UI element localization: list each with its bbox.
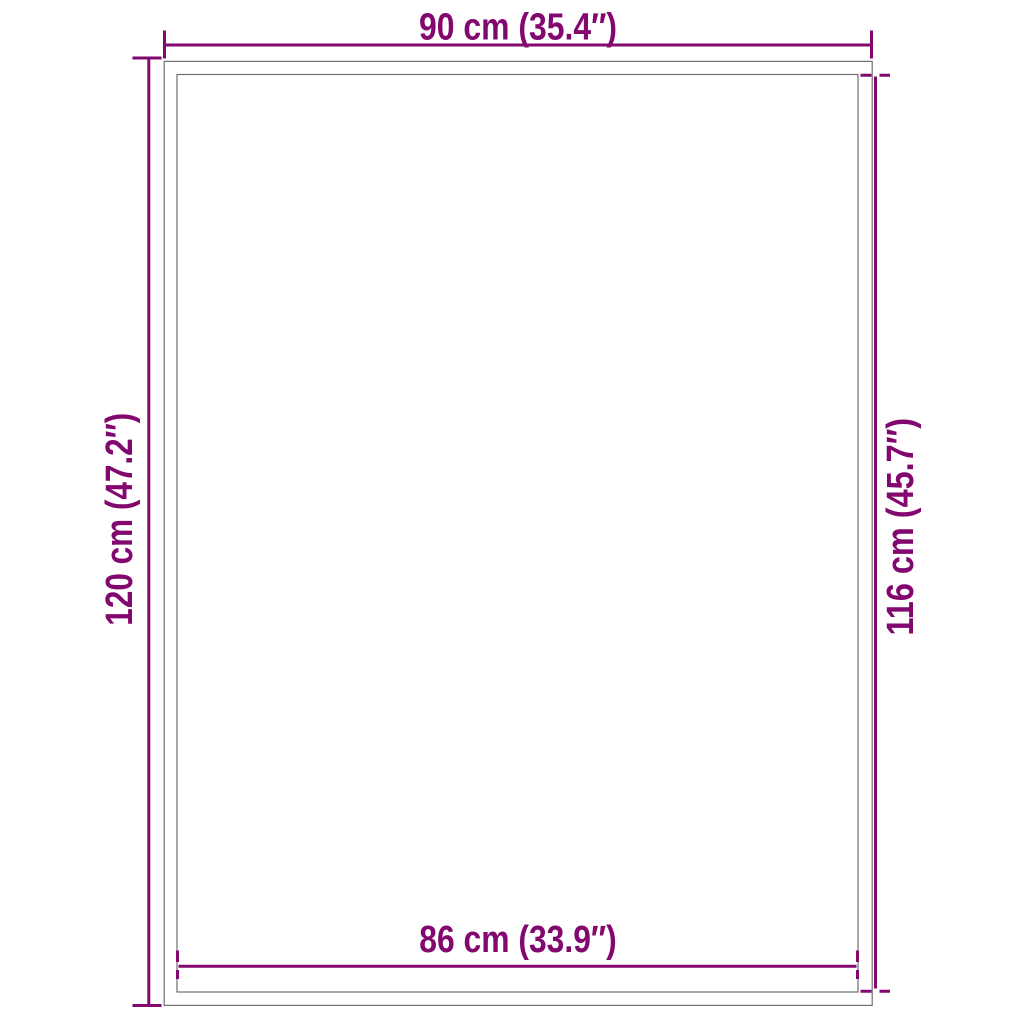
svg-text:120 cm (47.2″): 120 cm (47.2″) — [99, 413, 141, 626]
svg-text:116 cm (45.7″): 116 cm (45.7″) — [880, 418, 922, 636]
svg-text:86 cm (33.9″): 86 cm (33.9″) — [419, 919, 617, 961]
svg-text:90 cm (35.4″): 90 cm (35.4″) — [419, 7, 617, 49]
